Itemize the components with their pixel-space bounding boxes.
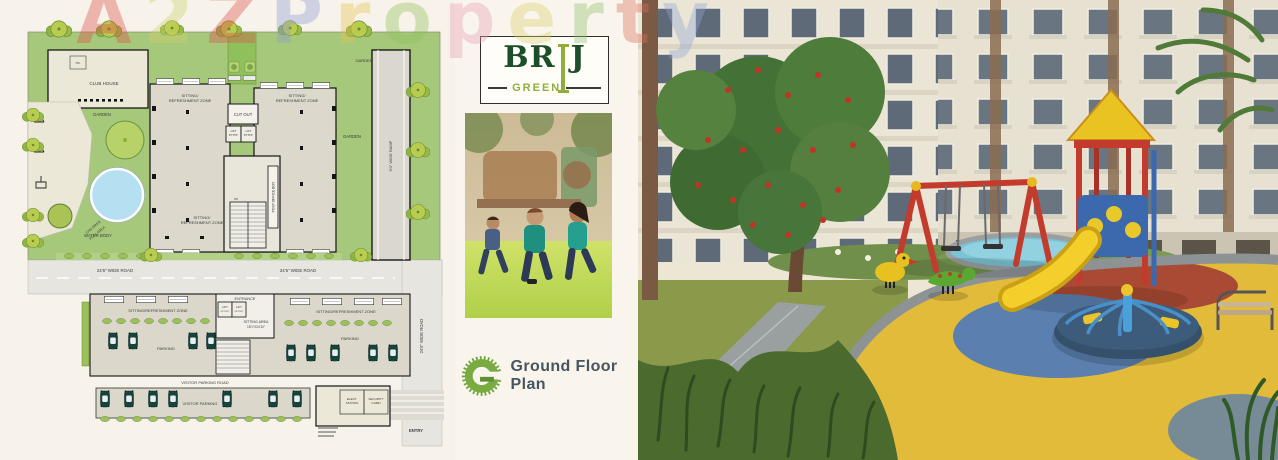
- logo-letter-j: J: [571, 43, 586, 73]
- logo-wordmark: BR I J: [481, 43, 608, 93]
- entry-label: ENTRY: [409, 428, 423, 433]
- lower-parking-block: SITTING/REFRESHMENT ZONE PARKING ENTRANC…: [82, 294, 410, 376]
- garden-label: GARDEN: [93, 112, 111, 117]
- water-body-label: WATER BODY: [84, 233, 112, 238]
- brij-green-logo: BR I J GREEN: [480, 36, 609, 104]
- sitting-zone-label: SITTING/REFRESHMENT ZONE: [316, 309, 376, 314]
- logo-letters-br: BR: [503, 43, 555, 73]
- lift-label: LIFT: [222, 305, 228, 309]
- lift-size-label: 5'6"X5'6": [244, 135, 253, 137]
- security-cabin-label: CABIN: [371, 401, 380, 405]
- staircase: [216, 340, 250, 374]
- leaf-g-icon: [461, 352, 503, 400]
- sitting-zone-label: SITTING/REFRESHMENT ZONE: [128, 308, 188, 313]
- staircase: UP: [230, 197, 266, 248]
- garden-tree: [48, 204, 72, 228]
- brochure-canvas: 24'6" WIDE ROAD 24'6" WIDE ROAD 24'6" WI…: [0, 0, 1278, 460]
- sitting-zone-label: REFRESHMENT ZONE: [276, 98, 319, 103]
- elect-station-label: STATION: [346, 401, 359, 405]
- children-photo: [465, 113, 612, 318]
- sitting-zone-label: REFRESHMENT ZONE: [169, 98, 212, 103]
- parking-label: PARKING: [341, 336, 359, 341]
- entrance-label: ENTRANCE: [235, 297, 256, 301]
- ramp-label: 9'0" WIDE RAMP: [388, 140, 393, 171]
- courtyard-render: [638, 0, 1278, 460]
- photo-play-structure: [477, 147, 597, 208]
- plan-caption: Ground Floor Plan: [461, 352, 638, 400]
- toilet-label: TOI.: [75, 61, 81, 65]
- lift-label: LIFT: [246, 129, 252, 133]
- lift-size-label: 5'6"X5'6": [229, 135, 238, 137]
- lift-label: LIFT: [236, 305, 242, 309]
- caption-text: Ground Floor Plan: [511, 358, 638, 394]
- tower-left-wing: SITTING/ REFRESHMENT ZONE: [150, 79, 230, 256]
- hedge-row: [56, 253, 342, 260]
- ground-floor-plan: 24'6" WIDE ROAD 24'6" WIDE ROAD 24'6" WI…: [20, 6, 455, 454]
- visitor-parking-label: VISITOR PARKING: [183, 401, 218, 406]
- club-house-label: CLUB HOUSE: [89, 81, 118, 86]
- sitting-zone-label: REFRESHMENT ZONE: [181, 220, 224, 225]
- lift-size-label: 5'6"X5'6": [235, 311, 244, 313]
- lawn-circle: [106, 121, 144, 159]
- road-label: 24'6" WIDE ROAD: [97, 268, 133, 273]
- logo-letter-i: I: [558, 43, 569, 93]
- garden-label: GARDEN: [343, 134, 361, 139]
- road-label-vertical: 24'6" WIDE ROAD: [419, 319, 424, 354]
- ramp: 9'0" WIDE RAMP: [372, 50, 410, 260]
- lift-size-label: 5'6"X5'6": [221, 311, 230, 313]
- central-garden-strip: [228, 32, 256, 84]
- center-panel: BR I J GREEN: [455, 0, 638, 460]
- visitor-parking: VISITOR PARKING: [96, 388, 310, 422]
- garden-label: GARDEN: [355, 58, 372, 63]
- post-office-box-label: POST OFFICE BOX: [272, 181, 276, 212]
- up-label: UP: [234, 197, 238, 201]
- road-label: 24'6" WIDE ROAD: [280, 268, 316, 273]
- cut-out-label: CUT OUT: [234, 112, 253, 117]
- sitting-area-label: SITTING AREA: [244, 320, 269, 324]
- lift-label: LIFT: [231, 129, 237, 133]
- club-house: TOI. CLUB HOUSE: [48, 50, 148, 108]
- parking-label: PARKING: [157, 346, 175, 351]
- sitting-area-size: 15'1"X24'10": [247, 325, 265, 329]
- visitor-parking-road-label: VISITOR PARKING ROAD: [181, 380, 229, 385]
